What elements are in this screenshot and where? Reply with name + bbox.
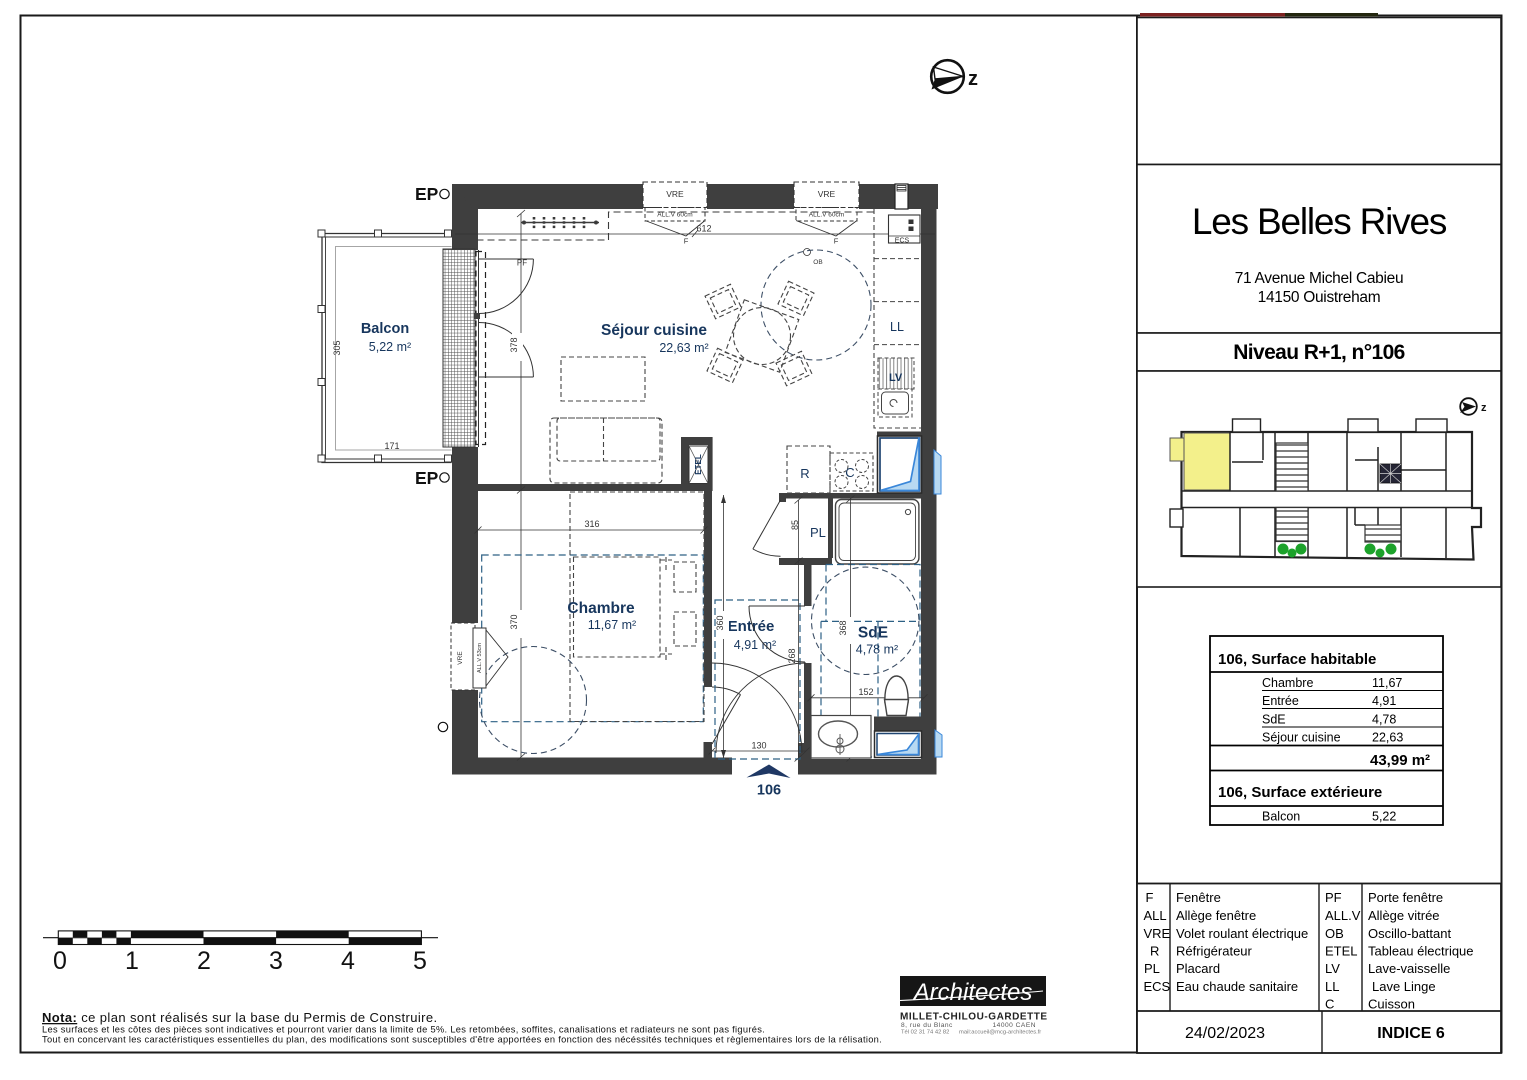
svg-text:4,78 m²: 4,78 m²	[856, 643, 898, 657]
svg-text:MILLET-CHILOU-GARDETTE: MILLET-CHILOU-GARDETTE	[900, 1012, 1048, 1023]
svg-text:VRE: VRE	[457, 651, 464, 665]
svg-text:5: 5	[413, 947, 427, 975]
svg-text:Tableau électrique: Tableau électrique	[1368, 944, 1474, 959]
svg-text:Balcon: Balcon	[1262, 810, 1300, 824]
svg-text:Lave Linge: Lave Linge	[1372, 979, 1436, 994]
svg-text:152: 152	[858, 687, 873, 697]
svg-text:EP: EP	[415, 468, 439, 488]
svg-text:4,78: 4,78	[1372, 713, 1396, 727]
svg-text:5,22 m²: 5,22 m²	[369, 340, 411, 354]
svg-text:F: F	[1146, 890, 1154, 905]
svg-text:F: F	[684, 237, 689, 246]
svg-text:C: C	[1325, 997, 1334, 1012]
svg-text:Porte fenêtre: Porte fenêtre	[1368, 890, 1443, 905]
svg-text:Architectes: Architectes	[912, 979, 1033, 1006]
svg-text:Placard: Placard	[1176, 961, 1220, 976]
svg-text:8, rue du Blanc: 8, rue du Blanc 14000 CAEN	[901, 1022, 1036, 1029]
svg-text:ALL: ALL	[1144, 908, 1167, 923]
svg-text:71 Avenue Michel Cabieu: 71 Avenue Michel Cabieu	[1235, 270, 1404, 287]
svg-text:ECS: ECS	[895, 238, 910, 245]
svg-text:R: R	[1150, 944, 1159, 959]
svg-text:11,67: 11,67	[1372, 676, 1402, 690]
svg-text:305: 305	[332, 340, 342, 355]
svg-text:ALL.V: ALL.V	[1325, 908, 1361, 923]
svg-text:368: 368	[838, 620, 848, 635]
svg-text:24/02/2023: 24/02/2023	[1185, 1025, 1265, 1042]
svg-text:370: 370	[509, 614, 519, 629]
svg-text:Tél 02 31 74 42 82 mail:a: Tél 02 31 74 42 82 mail:accueil@mcg-arch…	[901, 1030, 1041, 1036]
svg-text:4,91: 4,91	[1372, 694, 1396, 708]
svg-text:2: 2	[197, 947, 211, 975]
svg-text:Entrée: Entrée	[1262, 694, 1299, 708]
svg-text:106, Surface extérieure: 106, Surface extérieure	[1218, 784, 1382, 801]
svg-text:INDICE 6: INDICE 6	[1377, 1025, 1445, 1042]
svg-text:Allège fenêtre: Allège fenêtre	[1176, 908, 1256, 923]
svg-text:Niveau R+1, n°106: Niveau R+1, n°106	[1233, 341, 1405, 364]
svg-text:PL: PL	[810, 525, 826, 540]
svg-text:130: 130	[751, 741, 766, 751]
svg-text:43,99 m²: 43,99 m²	[1370, 752, 1430, 769]
svg-text:Réfrigérateur: Réfrigérateur	[1176, 944, 1253, 959]
svg-text:C: C	[845, 465, 854, 480]
svg-text:Allège vitrée: Allège vitrée	[1368, 908, 1440, 923]
svg-text:Oscillo-battant: Oscillo-battant	[1368, 926, 1451, 941]
svg-text:4: 4	[341, 947, 355, 975]
svg-text:3: 3	[269, 947, 283, 975]
svg-text:PL: PL	[1144, 961, 1160, 976]
svg-text:Chambre: Chambre	[1262, 676, 1313, 690]
svg-text:ETEL: ETEL	[694, 454, 703, 475]
svg-text:Tout en concervant les caracté: Tout en concervant les caractéristiques …	[42, 1035, 882, 1045]
svg-text:z: z	[968, 68, 978, 90]
svg-text:1: 1	[125, 947, 139, 975]
svg-text:Balcon: Balcon	[361, 321, 409, 337]
svg-text:Les Belles Rives: Les Belles Rives	[1192, 201, 1447, 242]
svg-text:Volet roulant électrique: Volet roulant électrique	[1176, 926, 1308, 941]
svg-text:VRE: VRE	[1144, 926, 1171, 941]
svg-text:Séjour cuisine: Séjour cuisine	[1262, 731, 1341, 745]
svg-text:ETEL: ETEL	[1325, 944, 1358, 959]
svg-text:22,63: 22,63	[1372, 731, 1403, 745]
svg-text:Eau chaude sanitaire: Eau chaude sanitaire	[1176, 979, 1298, 994]
svg-text:316: 316	[584, 519, 599, 529]
svg-text:0: 0	[53, 947, 67, 975]
svg-text:Nota: ce plan sont réalisés su: Nota: ce plan sont réalisés sur la base …	[42, 1010, 438, 1025]
svg-text:612: 612	[696, 224, 711, 234]
svg-text:VRE: VRE	[818, 189, 836, 199]
svg-text:R: R	[800, 466, 809, 481]
svg-text:SdE: SdE	[858, 625, 888, 642]
svg-text:Fenêtre: Fenêtre	[1176, 890, 1221, 905]
svg-text:5,22: 5,22	[1372, 810, 1396, 824]
svg-text:VRE: VRE	[666, 189, 684, 199]
svg-text:OB: OB	[813, 259, 822, 266]
svg-text:LV: LV	[1325, 961, 1340, 976]
svg-text:Cuisson: Cuisson	[1368, 997, 1415, 1012]
svg-text:85: 85	[790, 520, 800, 530]
svg-text:360: 360	[715, 615, 725, 630]
svg-text:22,63 m²: 22,63 m²	[659, 341, 708, 355]
svg-text:F: F	[834, 237, 839, 246]
svg-text:14150 Ouistreham: 14150 Ouistreham	[1258, 289, 1381, 306]
svg-text:Les surfaces et les côtes des: Les surfaces et les côtes des pièces son…	[42, 1025, 765, 1035]
svg-text:Lave-vaisselle: Lave-vaisselle	[1368, 961, 1450, 976]
svg-text:LL: LL	[1325, 979, 1339, 994]
svg-text:OB: OB	[1325, 926, 1344, 941]
svg-text:Séjour cuisine: Séjour cuisine	[601, 322, 707, 339]
svg-text:PF: PF	[1325, 890, 1342, 905]
svg-text:106, Surface habitable: 106, Surface habitable	[1218, 651, 1376, 668]
svg-text:z: z	[1481, 402, 1487, 414]
svg-text:Chambre: Chambre	[567, 600, 635, 617]
svg-text:SdE: SdE	[1262, 713, 1286, 727]
svg-text:106: 106	[757, 783, 781, 799]
svg-text:LL: LL	[890, 320, 904, 334]
svg-text:171: 171	[384, 441, 399, 451]
svg-text:378: 378	[509, 337, 519, 352]
svg-text:11,67 m²: 11,67 m²	[588, 618, 636, 632]
svg-text:PF: PF	[517, 259, 527, 268]
svg-text:ALL.V 53cm: ALL.V 53cm	[477, 643, 483, 673]
svg-text:LV: LV	[889, 372, 903, 384]
svg-text:EP: EP	[415, 184, 439, 204]
svg-text:ECS: ECS	[1144, 979, 1171, 994]
